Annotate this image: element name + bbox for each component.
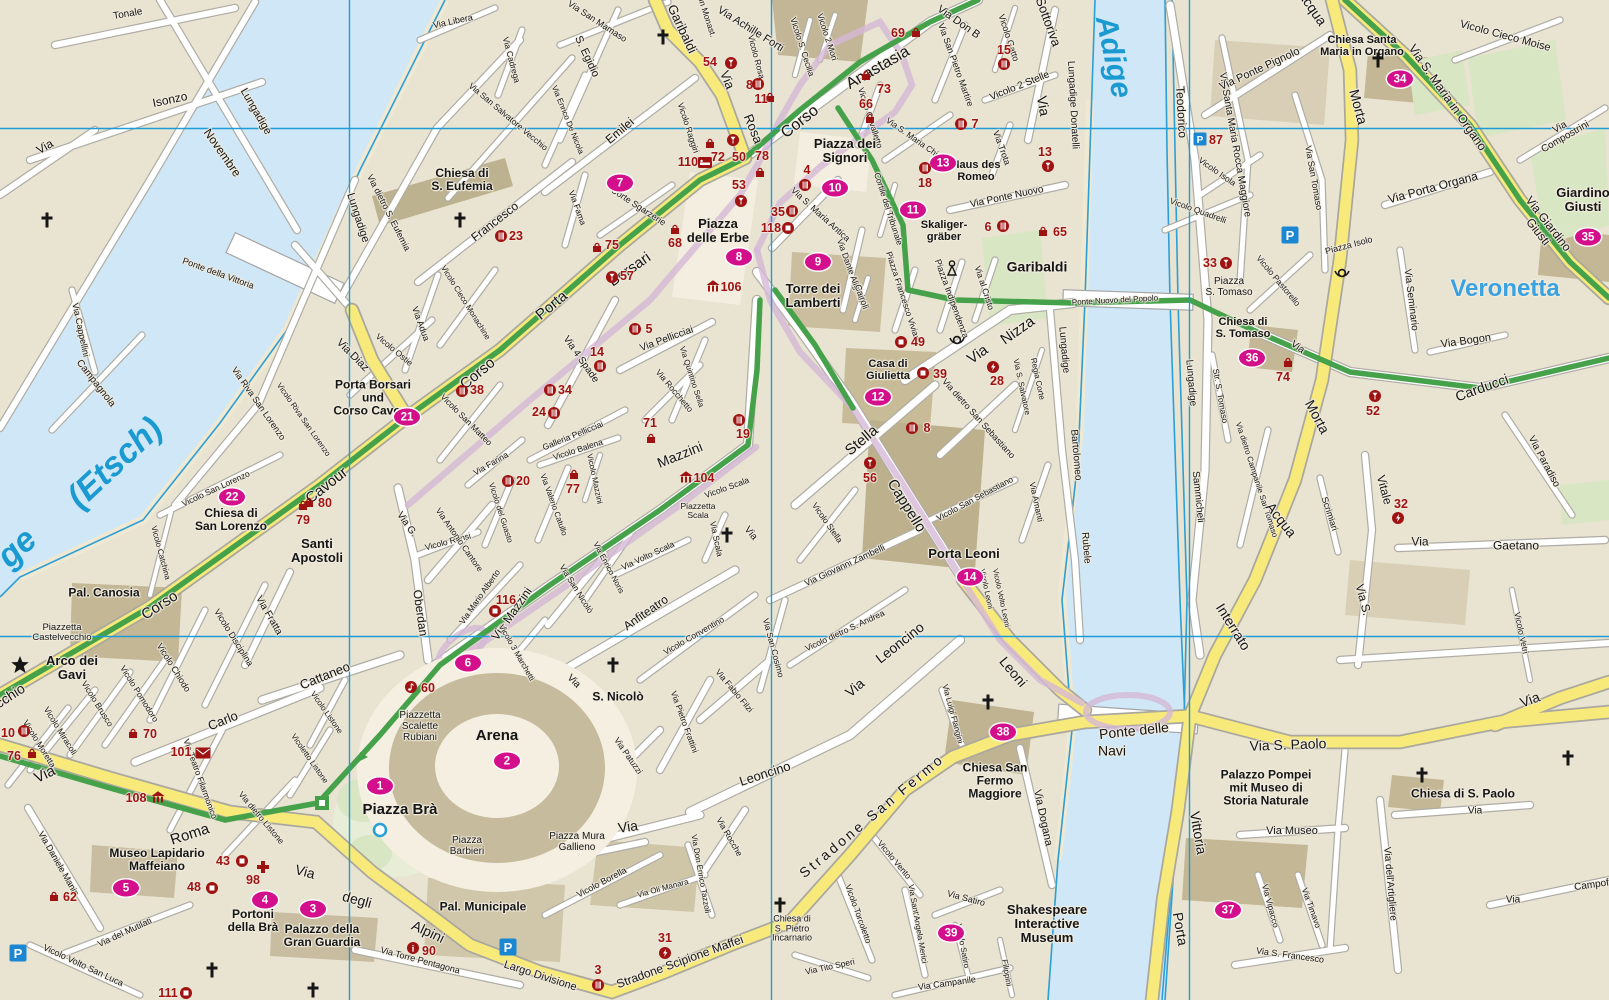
- street: [55, 8, 235, 45]
- attraction-marker-38[interactable]: 38: [990, 724, 1016, 741]
- poi-number: 11: [754, 92, 767, 106]
- fork-icon: [919, 162, 932, 175]
- street-label: Via: [1506, 896, 1520, 907]
- street: [1340, 643, 1609, 660]
- poi-label: Arena: [476, 728, 519, 744]
- bag-icon: [860, 69, 873, 82]
- poi-number: 111: [158, 986, 177, 1000]
- attraction-marker-7[interactable]: 7: [607, 175, 633, 192]
- church-icon: [981, 695, 995, 710]
- church-icon: [1561, 751, 1575, 766]
- bolt-icon: [1392, 512, 1405, 525]
- poi-label: Giardino Giusti: [1556, 186, 1609, 214]
- verona-city-map: NovembreTonaleIsonzoViaLungadigeLungadig…: [0, 0, 1609, 1000]
- poi-label: Piazzetta Scalette Rubiani: [399, 711, 440, 743]
- poi-number: 8: [924, 421, 931, 435]
- church-icon: [606, 658, 620, 673]
- house-icon: [706, 280, 720, 293]
- parkingBig-icon[interactable]: P: [500, 939, 517, 956]
- misc-icon: [489, 605, 502, 618]
- glass-icon: [606, 271, 619, 284]
- street-label: Piazza Barbieri: [450, 836, 484, 858]
- bag-icon: [48, 890, 61, 903]
- street-label: Via: [1034, 95, 1052, 117]
- poi-number: 53: [732, 178, 746, 192]
- poi-label: Portoni della Brà: [228, 908, 279, 934]
- poi-number: 48: [187, 880, 201, 894]
- monument-icon: [946, 260, 958, 276]
- poi-label: Porta Leoni: [928, 547, 1000, 561]
- poi-number: 78: [755, 149, 769, 163]
- bag-icon: [26, 747, 39, 760]
- attraction-marker-11[interactable]: 11: [900, 202, 926, 219]
- poi-label: Palazzo Pompei mit Museo di Storia Natur…: [1221, 769, 1312, 808]
- poi-number: 80: [318, 496, 332, 510]
- svg-text:P: P: [1286, 228, 1295, 243]
- attraction-marker-34[interactable]: 34: [1387, 71, 1413, 88]
- poi-label: Chiesa di S. Pietro Incarnario: [772, 914, 812, 943]
- poi-number: 54: [703, 55, 717, 69]
- fork-icon: [495, 230, 508, 243]
- church-icon: [205, 963, 219, 978]
- fork-icon: [786, 205, 799, 218]
- post-icon: [949, 334, 965, 346]
- poi-number: 77: [566, 482, 580, 496]
- bolt-icon: [987, 361, 1000, 374]
- poi-number: 15: [997, 43, 1011, 57]
- attraction-marker-35[interactable]: 35: [1575, 229, 1601, 246]
- street-label: Via S. Paolo: [1249, 736, 1326, 754]
- bag-icon: [669, 223, 682, 236]
- poi-number: 65: [1053, 225, 1067, 239]
- attraction-marker-22[interactable]: 22: [219, 489, 245, 506]
- misc-icon: [180, 987, 193, 1000]
- bag-icon: [1282, 356, 1295, 369]
- fork-icon: [594, 360, 607, 373]
- fork-icon: [456, 385, 469, 398]
- attraction-marker-2[interactable]: 2: [494, 753, 520, 770]
- poi-label: Piazza Brà: [362, 802, 437, 818]
- bag-icon: [864, 112, 877, 125]
- poi-number: 73: [877, 82, 891, 96]
- routeSquare-icon: [315, 796, 329, 810]
- poi-label: Shakespeare Interactive Museum: [1007, 903, 1087, 945]
- attraction-marker-39[interactable]: 39: [938, 925, 964, 942]
- fork-icon: [997, 220, 1010, 233]
- poi-number: 23: [509, 229, 523, 243]
- attraction-marker-4[interactable]: 4: [252, 892, 278, 909]
- poi-number: 110: [678, 155, 698, 169]
- poi-number: 19: [736, 427, 750, 441]
- poi-number: 5: [646, 322, 653, 336]
- fork-icon: [733, 414, 746, 427]
- poi-label: Garibaldi: [1007, 259, 1068, 274]
- poi-number: 56: [863, 471, 877, 485]
- parkingBig-icon[interactable]: P: [10, 945, 27, 962]
- attraction-marker-37[interactable]: 37: [1215, 902, 1241, 919]
- church-icon: [720, 528, 734, 543]
- poi-number: 101: [171, 745, 192, 759]
- poi-number: 6: [985, 220, 992, 234]
- misc-icon: [917, 367, 930, 380]
- church-icon: [656, 30, 670, 45]
- poi-label: Torre dei Lamberti: [786, 282, 841, 310]
- glass-icon: [727, 134, 740, 147]
- poi-label: Piazza delle Erbe: [687, 217, 749, 245]
- poi-number: 71: [643, 416, 657, 430]
- attraction-marker-1[interactable]: 1: [367, 778, 393, 795]
- routeArrow-icon: [356, 750, 370, 764]
- bag-icon: [127, 727, 140, 740]
- poi-label: S. Nicolò: [592, 691, 643, 704]
- bag-icon: [568, 468, 581, 481]
- attraction-marker-6[interactable]: 6: [455, 655, 481, 672]
- poi-number: 20: [516, 474, 530, 488]
- bag-icon: [303, 496, 316, 509]
- poi-number: 43: [216, 854, 230, 868]
- street-label: Navi: [1098, 743, 1126, 758]
- poi-number: 90: [422, 944, 436, 958]
- glass-icon: [1220, 257, 1233, 270]
- poi-number: 104: [694, 471, 715, 485]
- glass-icon: [735, 195, 748, 208]
- street: [1330, 750, 1345, 950]
- misc-icon: [206, 882, 219, 895]
- poi-label: Piazzetta Castelvecchio: [32, 623, 91, 644]
- poi-label: Haus des Romeo: [952, 160, 1001, 184]
- poi-number: 32: [1394, 497, 1408, 511]
- misc-icon: [782, 222, 795, 235]
- poi-number: 38: [470, 383, 484, 397]
- church-icon: [306, 983, 320, 998]
- svg-text:P: P: [504, 940, 513, 955]
- poi-label: Chiesa di S. Tomaso: [1216, 317, 1271, 341]
- poi-number: 35: [771, 205, 785, 219]
- fork-icon: [752, 78, 765, 91]
- poi-number: 50: [732, 150, 746, 164]
- poi-number: 7: [972, 117, 979, 131]
- poi-number: 108: [126, 791, 147, 805]
- poi-number: 13: [1038, 145, 1052, 159]
- street-label: Rubele: [1078, 532, 1092, 565]
- church-icon: [453, 213, 467, 228]
- poi-label: Skaliger- gräber: [921, 220, 967, 244]
- park: [1468, 40, 1566, 138]
- fork-icon: [799, 179, 812, 192]
- attraction-marker-21[interactable]: 21: [394, 409, 420, 426]
- poi-number: 70: [143, 727, 157, 741]
- attraction-marker-8[interactable]: 8: [726, 249, 752, 266]
- bolt-icon: [659, 947, 672, 960]
- fork-icon: [18, 725, 31, 738]
- poi-label: Chiesa di S. Eufemia: [431, 167, 492, 193]
- poi-number: 31: [658, 931, 672, 945]
- street-label: Piazza Mura Gallieno: [549, 832, 605, 854]
- misc-icon: [236, 855, 249, 868]
- poi-number: 60: [421, 681, 435, 695]
- attraction-marker-36[interactable]: 36: [1239, 350, 1265, 367]
- poi-number: 106: [721, 280, 742, 294]
- cross-icon: [257, 861, 270, 874]
- fork-icon: [592, 979, 605, 992]
- svg-text:P: P: [14, 946, 23, 961]
- star-icon: [11, 656, 29, 674]
- attraction-marker-3[interactable]: 3: [300, 901, 326, 918]
- church-icon: [1415, 768, 1429, 783]
- poi-number: 4: [804, 163, 811, 177]
- poi-number: 57: [620, 269, 634, 283]
- poi-label: Chiesa San Fermo Maggiore: [963, 762, 1028, 801]
- poi-number: 118: [761, 221, 781, 235]
- poi-number: 62: [63, 890, 77, 904]
- poi-number: 10: [1, 726, 15, 740]
- street-label: Gaetano: [1493, 540, 1539, 553]
- poi-label: Casa di Giulietta: [866, 359, 910, 383]
- poi-number: 66: [859, 97, 873, 111]
- bag-icon: [910, 26, 923, 39]
- poi-number: 87: [1209, 133, 1223, 147]
- poi-number: 18: [918, 176, 932, 190]
- bag-icon: [645, 432, 658, 445]
- street-label: Via: [617, 818, 639, 836]
- bag-icon: [1037, 225, 1050, 238]
- fork-icon: [998, 58, 1011, 71]
- street-label: Via: [1411, 536, 1428, 549]
- street-label: Via: [1468, 807, 1482, 818]
- bag-icon: [754, 166, 767, 179]
- house-icon: [151, 791, 165, 804]
- attraction-marker-9[interactable]: 9: [805, 254, 831, 271]
- attraction-marker-13[interactable]: 13: [930, 155, 956, 172]
- svg-text:P: P: [1197, 135, 1204, 146]
- poi-label: Arco dei Gavi: [46, 654, 98, 682]
- bed-icon: [698, 157, 712, 169]
- mail-icon: [196, 748, 211, 759]
- poi-number: 75: [605, 238, 619, 252]
- attraction-marker-5[interactable]: 5: [113, 880, 139, 897]
- church-icon: [773, 898, 787, 913]
- glass-icon: [1042, 160, 1055, 173]
- poi-label: Pal. Municipale: [440, 901, 527, 914]
- fork-icon: [955, 118, 968, 131]
- poi-number: 3: [595, 963, 602, 977]
- poi-label: Chiesa Santa Maria in Organo: [1320, 35, 1404, 59]
- fork-icon: [548, 407, 561, 420]
- poi-label: Piazza dei Signori: [814, 137, 876, 165]
- parking-icon: P: [1194, 133, 1207, 146]
- church-icon: [1371, 53, 1385, 68]
- street-label: Piazzetta Scala: [681, 502, 716, 520]
- misc-icon: [895, 336, 908, 349]
- poi-label: Chiesa di San Lorenzo: [195, 507, 267, 533]
- poi-number: 14: [590, 345, 604, 359]
- poi-number: 49: [911, 335, 925, 349]
- fork-icon: [502, 475, 515, 488]
- glass-icon: [725, 57, 738, 70]
- poi-number: 98: [246, 873, 260, 887]
- fork-icon: [544, 384, 557, 397]
- glass-icon: [864, 457, 877, 470]
- district-label: Veronetta: [1450, 276, 1559, 302]
- house-icon: [679, 471, 693, 484]
- fork-icon: [906, 422, 919, 435]
- poi-number: 33: [1203, 256, 1217, 270]
- street-label: Teodorico: [1173, 86, 1189, 139]
- poi-label: Chiesa di S. Paolo: [1411, 788, 1515, 801]
- poi-number: 72: [711, 150, 725, 164]
- routeCircle-icon: [373, 823, 388, 838]
- attraction-marker-14[interactable]: 14: [957, 569, 983, 586]
- attraction-marker-10[interactable]: 10: [822, 180, 848, 197]
- attraction-marker-12[interactable]: 12: [865, 389, 891, 406]
- street-label: Via Museo: [1266, 826, 1318, 838]
- glass-icon: [1369, 390, 1382, 403]
- poi-number: 52: [1366, 404, 1380, 418]
- poi-number: 28: [990, 374, 1004, 388]
- poi-number: 39: [933, 367, 947, 381]
- poi-label: Palazzo della Gran Guardia: [284, 923, 361, 949]
- poi-number: 76: [7, 749, 21, 763]
- poi-number: 34: [558, 383, 572, 397]
- post-icon: [1334, 267, 1350, 279]
- poi-label: Piazza S. Tomaso: [1205, 277, 1252, 299]
- fork-icon: [629, 323, 642, 336]
- poi-number: 79: [296, 513, 310, 527]
- poi-label: Museo Lapidario Maffeiano: [109, 847, 204, 873]
- poi-label: Santi Apostoli: [291, 537, 343, 565]
- info-icon: i: [407, 942, 420, 955]
- poi-label: Pal. Canosia: [68, 587, 139, 600]
- bag-icon: [591, 241, 604, 254]
- church-icon: [40, 213, 54, 228]
- parkingBig-icon[interactable]: P: [1282, 227, 1299, 244]
- poi-number: 24: [532, 405, 546, 419]
- bag-icon: [704, 137, 717, 150]
- poi-number: 74: [1276, 370, 1290, 384]
- poi-number: 69: [891, 26, 905, 40]
- note-icon: [405, 681, 418, 694]
- poi-number: 68: [668, 236, 682, 250]
